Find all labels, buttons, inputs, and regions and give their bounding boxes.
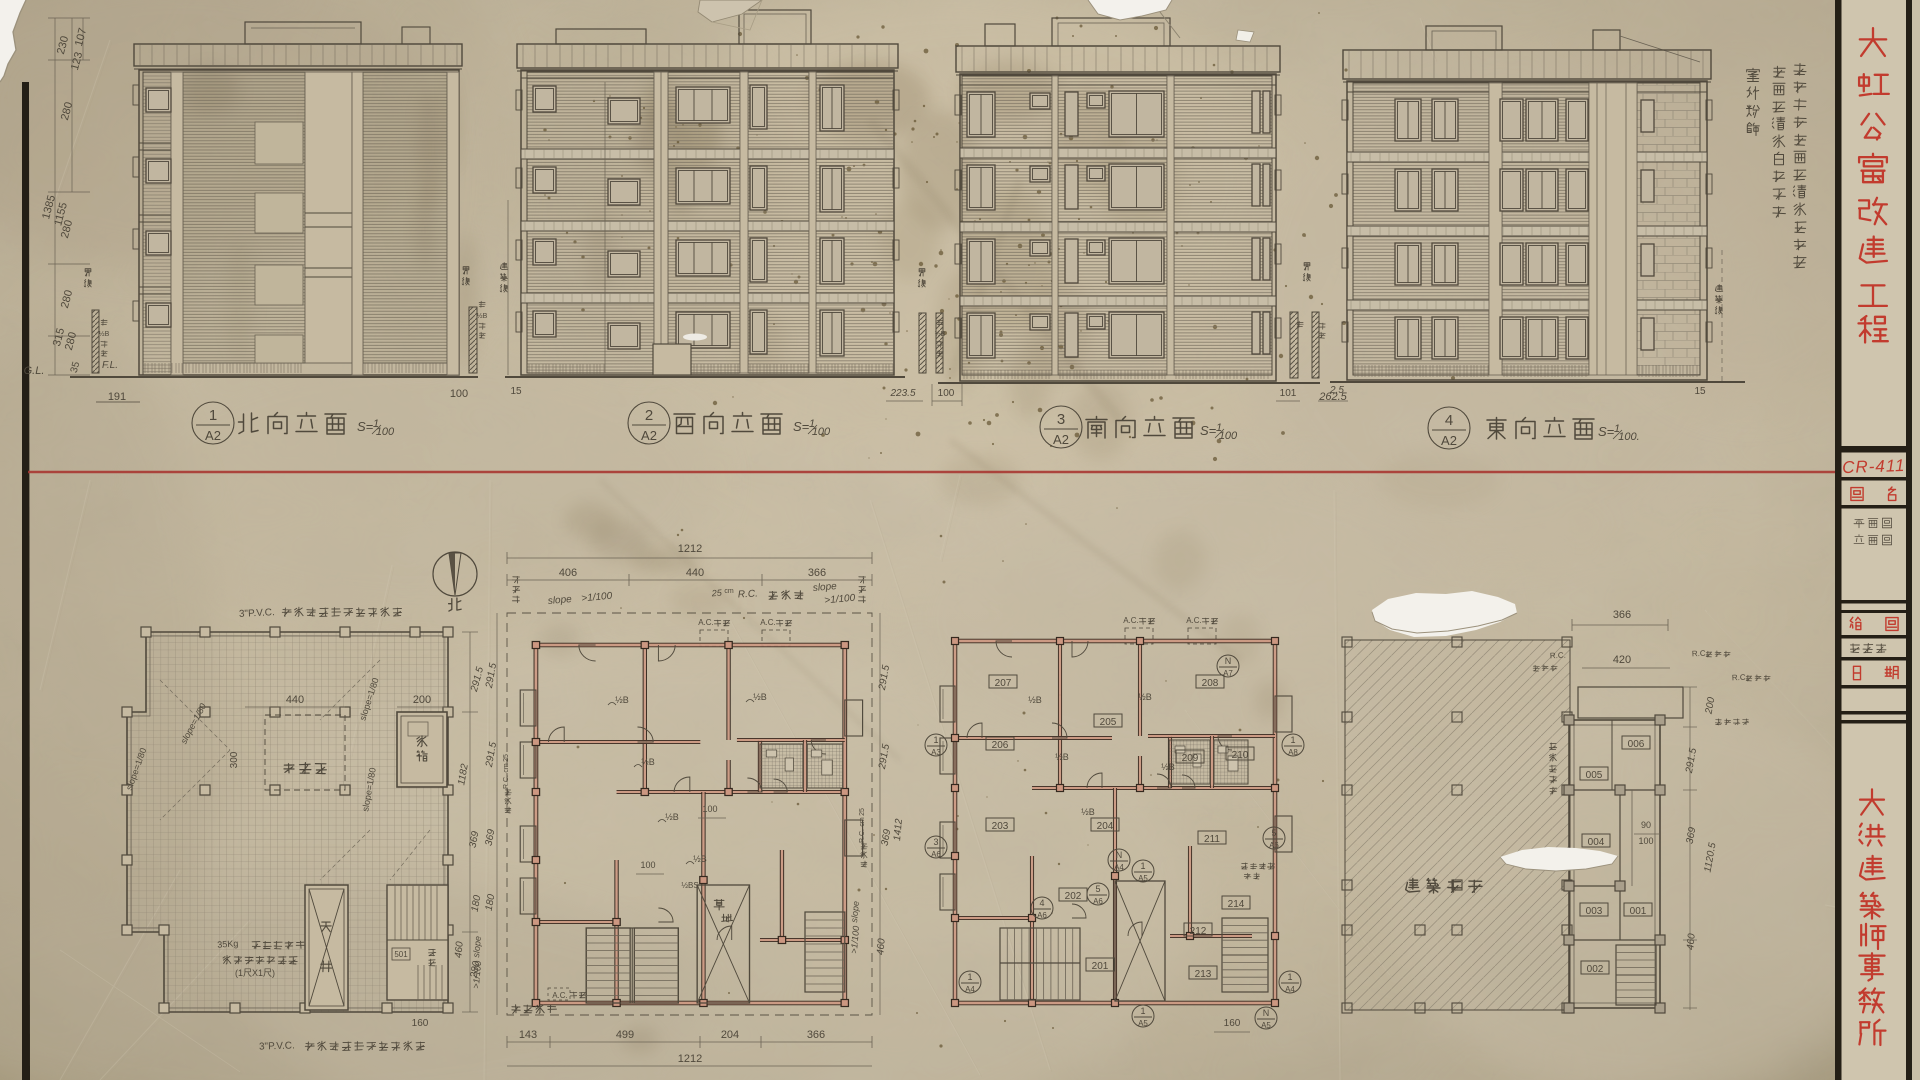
svg-text:cm: cm — [724, 588, 734, 595]
svg-text:460: 460 — [875, 938, 887, 956]
svg-text:F.L.: F.L. — [102, 360, 118, 371]
svg-text:1: 1 — [1140, 861, 1145, 871]
svg-text:(1尺X1尺): (1尺X1尺) — [235, 968, 275, 978]
svg-text:slope: slope — [471, 936, 483, 958]
svg-text:206: 206 — [992, 740, 1009, 751]
svg-text:160: 160 — [1224, 1018, 1241, 1029]
svg-text:A6: A6 — [931, 850, 941, 859]
svg-text:003: 003 — [1586, 906, 1603, 917]
svg-text:25: 25 — [859, 808, 866, 816]
svg-text:R.C.: R.C. — [1732, 673, 1748, 683]
svg-text:1: 1 — [1140, 1006, 1145, 1016]
svg-text:207: 207 — [995, 678, 1012, 689]
svg-text:208: 208 — [1202, 678, 1219, 689]
svg-text:A6: A6 — [1037, 911, 1047, 920]
svg-text:½BS: ½BS — [681, 881, 698, 890]
svg-text:A2: A2 — [205, 428, 221, 443]
svg-text:5: 5 — [1271, 828, 1276, 838]
svg-text:90: 90 — [1641, 820, 1651, 830]
svg-text:slope: slope — [812, 581, 837, 594]
svg-text:214: 214 — [1228, 899, 1245, 910]
svg-text:A.C.: A.C. — [698, 618, 714, 627]
svg-text:3"P.V.C.: 3"P.V.C. — [259, 1040, 295, 1052]
svg-text:S=: S= — [793, 419, 810, 434]
svg-text:A6: A6 — [1269, 841, 1279, 850]
svg-text:191: 191 — [108, 391, 126, 403]
svg-text:A.C.: A.C. — [1123, 616, 1139, 625]
svg-text:001: 001 — [1630, 906, 1647, 917]
svg-text:A5: A5 — [1138, 874, 1148, 883]
svg-text:A8: A8 — [1288, 748, 1298, 757]
svg-text:100.: 100. — [1618, 431, 1639, 443]
svg-text:CR-411: CR-411 — [1842, 456, 1906, 477]
svg-text:3: 3 — [1057, 411, 1065, 428]
svg-text:A3: A3 — [931, 748, 941, 757]
svg-text:½B: ½B — [1055, 752, 1069, 762]
svg-text:100: 100 — [640, 860, 655, 870]
svg-text:1212: 1212 — [678, 543, 702, 555]
svg-text:205: 205 — [1100, 717, 1117, 728]
svg-text:223.5: 223.5 — [889, 388, 915, 399]
svg-text:1: 1 — [967, 972, 972, 982]
svg-text:160: 160 — [412, 1018, 429, 1029]
svg-text:N: N — [1116, 850, 1123, 860]
svg-text:½B: ½B — [477, 312, 488, 320]
svg-text:100: 100 — [1638, 836, 1653, 846]
svg-text:499: 499 — [616, 1029, 634, 1041]
svg-text:R.C.: R.C. — [859, 829, 866, 843]
svg-text:4: 4 — [1039, 898, 1044, 908]
svg-text:R.C.: R.C. — [738, 588, 759, 600]
svg-text:100: 100 — [938, 388, 955, 399]
svg-text:½B: ½B — [665, 812, 679, 822]
svg-text:A4: A4 — [1114, 863, 1124, 872]
svg-text:½B: ½B — [1081, 807, 1095, 817]
svg-text:15: 15 — [1694, 386, 1706, 397]
svg-text:1: 1 — [933, 735, 938, 745]
svg-text:366: 366 — [1613, 609, 1631, 621]
svg-text:366: 366 — [808, 567, 826, 579]
svg-text:366: 366 — [807, 1029, 825, 1041]
svg-text:15: 15 — [510, 386, 522, 397]
svg-text:25: 25 — [710, 588, 723, 599]
svg-text:005: 005 — [1586, 770, 1603, 781]
svg-text:R.C.: R.C. — [1692, 649, 1708, 659]
svg-text:S=: S= — [357, 419, 374, 434]
svg-text:A5: A5 — [1138, 1019, 1148, 1028]
svg-text:slope: slope — [849, 901, 861, 923]
svg-text:211: 211 — [1204, 834, 1220, 845]
svg-text:cm: cm — [503, 763, 510, 773]
svg-text:½B: ½B — [1138, 692, 1152, 702]
svg-text:4: 4 — [1445, 412, 1453, 429]
svg-text:A2: A2 — [1441, 433, 1457, 448]
svg-text:A2: A2 — [1053, 432, 1069, 447]
svg-text:S=: S= — [1598, 424, 1615, 439]
svg-text:½B: ½B — [693, 854, 707, 864]
svg-text:203: 203 — [992, 821, 1009, 832]
svg-text:100: 100 — [450, 388, 468, 400]
svg-text:½B: ½B — [99, 330, 110, 338]
svg-text:N: N — [1225, 656, 1232, 666]
svg-text:2.5: 2.5 — [1329, 385, 1344, 396]
svg-text:A7: A7 — [1223, 669, 1233, 678]
svg-text:½B: ½B — [753, 692, 767, 702]
svg-text:202: 202 — [1065, 891, 1082, 902]
svg-text:006: 006 — [1628, 739, 1645, 750]
svg-text:209: 209 — [1182, 753, 1199, 764]
svg-text:A2: A2 — [641, 428, 657, 443]
svg-text:5: 5 — [1095, 884, 1100, 894]
svg-text:A4: A4 — [1285, 985, 1295, 994]
svg-text:A.C.: A.C. — [552, 991, 568, 1000]
svg-text:204: 204 — [721, 1029, 739, 1041]
svg-text:002: 002 — [1587, 964, 1604, 975]
svg-text:501: 501 — [394, 950, 408, 959]
svg-text:cm: cm — [859, 817, 866, 827]
svg-text:420: 420 — [1613, 654, 1631, 666]
svg-text:460: 460 — [453, 941, 465, 959]
svg-text:143: 143 — [519, 1029, 537, 1041]
svg-text:N: N — [1263, 1008, 1270, 1018]
svg-text:1412: 1412 — [892, 818, 905, 842]
svg-text:½B: ½B — [1028, 695, 1042, 705]
svg-text:A.C.: A.C. — [760, 618, 776, 627]
svg-text:004: 004 — [1588, 837, 1605, 848]
svg-text:S=: S= — [1200, 423, 1217, 438]
svg-text:440: 440 — [686, 567, 704, 579]
svg-text:A5: A5 — [1261, 1021, 1271, 1030]
svg-text:25: 25 — [503, 754, 510, 762]
svg-text:½B: ½B — [615, 695, 629, 705]
svg-text:½B: ½B — [935, 330, 946, 338]
svg-text:204: 204 — [1097, 821, 1114, 832]
svg-text:300: 300 — [229, 751, 240, 768]
svg-text:101: 101 — [1280, 388, 1297, 399]
svg-text:201: 201 — [1092, 961, 1109, 972]
svg-text:G.L.: G.L. — [24, 365, 45, 377]
svg-text:R.C.: R.C. — [503, 775, 510, 789]
svg-text:A6: A6 — [1093, 897, 1103, 906]
svg-text:R.C.: R.C. — [1550, 651, 1566, 661]
svg-text:1212: 1212 — [678, 1053, 702, 1065]
svg-text:440: 440 — [286, 694, 304, 706]
svg-text:460: 460 — [1685, 933, 1697, 951]
svg-text:1: 1 — [1287, 972, 1292, 982]
svg-text:slope: slope — [547, 594, 572, 607]
svg-text:1: 1 — [209, 407, 217, 424]
svg-text:½B: ½B — [1161, 762, 1175, 772]
svg-text:2: 2 — [645, 407, 653, 424]
svg-text:212: 212 — [1190, 926, 1207, 937]
svg-text:3: 3 — [933, 837, 938, 847]
svg-text:210: 210 — [1232, 750, 1249, 761]
svg-text:½B: ½B — [641, 757, 655, 767]
svg-text:406: 406 — [559, 567, 577, 579]
svg-text:3"P.V.C.: 3"P.V.C. — [239, 607, 275, 620]
svg-text:1: 1 — [1290, 735, 1295, 745]
svg-text:100: 100 — [702, 804, 717, 814]
svg-text:A.C.: A.C. — [1186, 616, 1202, 625]
svg-text:35Kg: 35Kg — [217, 938, 239, 949]
svg-text:213: 213 — [1195, 969, 1212, 980]
svg-text:A4: A4 — [965, 985, 975, 994]
svg-text:200: 200 — [413, 694, 431, 706]
